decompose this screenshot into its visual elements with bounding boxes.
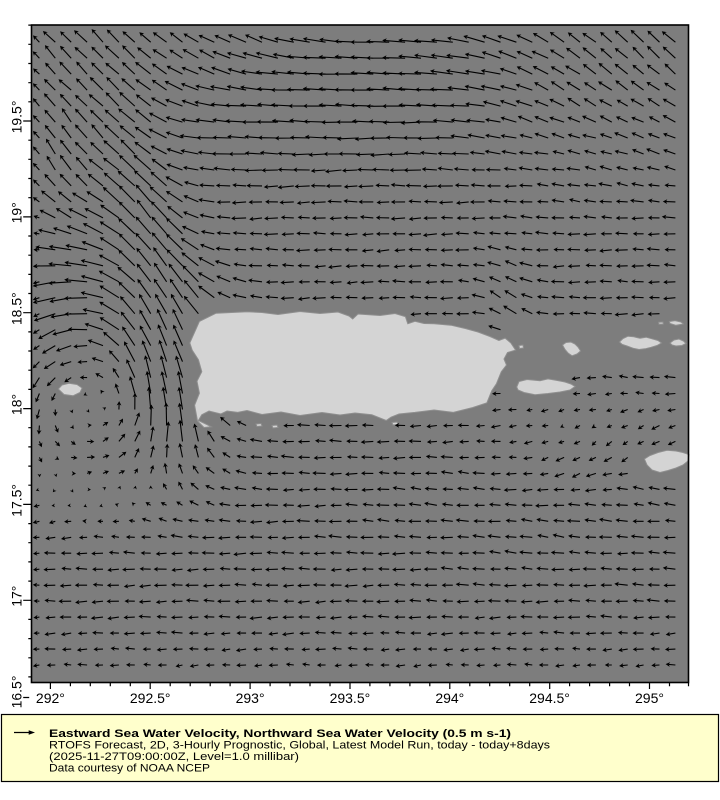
svg-text:292°: 292° <box>36 690 65 706</box>
svg-text:16.5°: 16.5° <box>9 676 25 709</box>
svg-text:293.5°: 293.5° <box>330 690 371 706</box>
svg-text:293°: 293° <box>236 690 265 706</box>
svg-text:19.5°: 19.5° <box>9 101 25 134</box>
svg-text:18°: 18° <box>9 394 25 415</box>
svg-text:(2025-11-27T09:00:00Z, Level=1: (2025-11-27T09:00:00Z, Level=1.0 milliba… <box>49 751 299 763</box>
svg-text:19°: 19° <box>9 202 25 223</box>
svg-text:Eastward Sea Water Velocity, N: Eastward Sea Water Velocity, Northward S… <box>49 728 511 740</box>
svg-text:17°: 17° <box>9 586 25 607</box>
svg-text:RTOFS Forecast, 2D, 3-Hourly P: RTOFS Forecast, 2D, 3-Hourly Prognostic,… <box>49 740 551 752</box>
svg-text:17.5°: 17.5° <box>9 484 25 517</box>
svg-text:292.5°: 292.5° <box>130 690 171 706</box>
svg-text:295°: 295° <box>635 690 664 706</box>
svg-text:Data courtesy of NOAA NCEP: Data courtesy of NOAA NCEP <box>49 762 210 774</box>
svg-text:18.5°: 18.5° <box>9 292 25 325</box>
svg-text:294°: 294° <box>435 690 464 706</box>
svg-text:294.5°: 294.5° <box>529 690 570 706</box>
